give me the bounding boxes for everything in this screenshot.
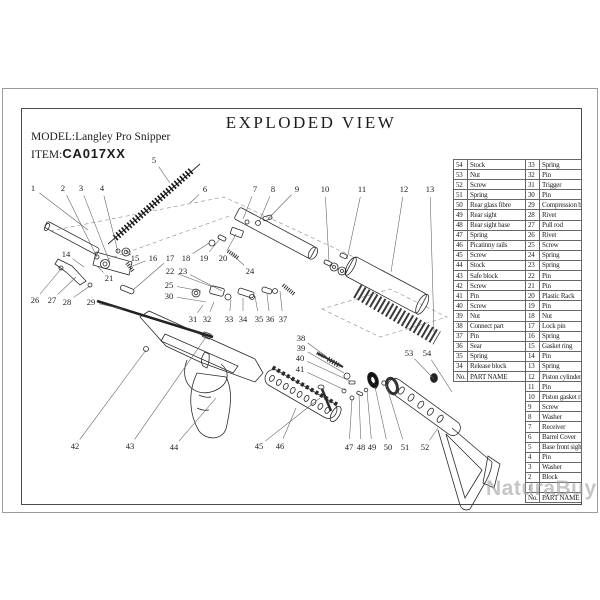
callout-leader-46: [283, 408, 296, 439]
part-name: Pin: [540, 271, 582, 281]
part-row: 6Barrel Cover: [526, 432, 582, 442]
part-no: 40: [454, 301, 468, 311]
part-row: 9Screw: [526, 402, 582, 412]
part-row: 32Pin: [526, 170, 582, 180]
callout-number-32: 32: [203, 314, 212, 324]
callout-number-40: 40: [296, 353, 305, 363]
part-no: 25: [526, 240, 540, 250]
part-no: 32: [526, 170, 540, 180]
callout-number-8: 8: [271, 184, 275, 194]
callout-leader-48: [359, 395, 361, 439]
pins-washers-drawing: [324, 252, 348, 275]
part-name: Sear: [468, 341, 526, 351]
callout-leader-35: [255, 296, 258, 311]
part-row: 31Trigger: [526, 180, 582, 190]
callout-number-9: 9: [295, 184, 299, 194]
callout-number-24: 24: [246, 266, 255, 276]
part-name: Screw: [468, 301, 526, 311]
part-row: 25Screw: [526, 240, 582, 250]
callout-number-47: 47: [345, 442, 354, 452]
callout-leader-37: [280, 291, 282, 311]
part-no: 39: [454, 311, 468, 321]
callout-leader-17: [133, 263, 164, 290]
part-name: Receiver: [540, 422, 582, 432]
part-row: 21Pin: [526, 281, 582, 291]
part-row: 47Spring: [454, 230, 526, 240]
part-name: Nut: [540, 311, 582, 321]
callout-number-48: 48: [357, 442, 366, 452]
part-row: 53Nut: [454, 170, 526, 180]
part-name: Piston cylinder: [540, 371, 582, 381]
callout-leader-49: [367, 391, 371, 439]
callout-number-10: 10: [321, 184, 330, 194]
part-name: Pin: [540, 382, 582, 392]
callout-number-14: 14: [62, 249, 71, 259]
part-no: 33: [526, 160, 540, 170]
callout-leader-30: [177, 297, 206, 302]
callout-number-51: 51: [401, 442, 410, 452]
callout-number-27: 27: [48, 295, 57, 305]
part-no: 37: [454, 331, 468, 341]
part-name: Pin: [540, 281, 582, 291]
callout-number-44: 44: [170, 442, 179, 452]
callout-number-11: 11: [358, 184, 366, 194]
part-name: Pull rod: [540, 220, 582, 230]
part-name: Washer: [540, 462, 582, 472]
part-name: Stock: [468, 160, 526, 170]
part-row: 51Spring: [454, 190, 526, 200]
callout-leader-10: [325, 197, 329, 262]
part-no: 4: [526, 452, 540, 462]
part-name: Rear sight: [468, 210, 526, 220]
part-name: Piston gasket ring: [540, 392, 582, 402]
part-no: 22: [526, 271, 540, 281]
part-no: 18: [526, 311, 540, 321]
callout-leader-33: [230, 300, 231, 311]
part-no: 52: [454, 180, 468, 190]
part-no: 41: [454, 291, 468, 301]
part-name: Pin: [540, 351, 582, 361]
part-row: 4Pin: [526, 452, 582, 462]
part-name: Pin: [540, 190, 582, 200]
parts-table-left: 54Stock53Nut52Screw51Spring50Rear glass …: [453, 159, 526, 382]
callout-leader-14: [72, 259, 84, 267]
callout-leader-3: [84, 195, 110, 263]
callout-leader-52: [430, 428, 438, 440]
callout-number-18: 18: [182, 253, 191, 263]
callout-number-6: 6: [203, 184, 207, 194]
callout-leader-12: [391, 197, 403, 272]
part-no: 47: [454, 230, 468, 240]
callout-leader-27: [58, 277, 76, 294]
part-name: Spring: [468, 190, 526, 200]
part-no: 9: [526, 402, 540, 412]
callout-leader-50: [375, 387, 386, 439]
part-row: 17Lock pin: [526, 321, 582, 331]
part-row: 30Pin: [526, 190, 582, 200]
part-no: 26: [526, 230, 540, 240]
part-row: 36Sear: [454, 341, 526, 351]
part-no: 29: [526, 200, 540, 210]
part-no: 53: [454, 170, 468, 180]
callout-number-7: 7: [253, 184, 257, 194]
callout-leader-5: [159, 167, 170, 183]
callout-number-3: 3: [79, 183, 83, 193]
part-row: 26Rivet: [526, 230, 582, 240]
callout-number-31: 31: [189, 314, 198, 324]
callout-leader-24: [232, 254, 244, 266]
part-name: Rear glass fibre: [468, 200, 526, 210]
callout-leader-13: [430, 197, 434, 332]
part-row: 24Spring: [526, 250, 582, 260]
part-no: No.: [454, 371, 468, 381]
part-no: 27: [526, 220, 540, 230]
barrel-drawing: [43, 221, 213, 337]
callout-leader-31: [198, 305, 204, 313]
part-row: 5Base front sight: [526, 442, 582, 452]
part-name: Plastic Rack: [540, 291, 582, 301]
part-no: 3: [526, 462, 540, 472]
mainspring-drawing: [108, 164, 200, 244]
part-name: Pin: [540, 452, 582, 462]
callout-number-50: 50: [384, 442, 393, 452]
callout-leader-53: [415, 359, 434, 379]
part-name: Gasket ring: [540, 341, 582, 351]
part-name: Spring: [540, 250, 582, 260]
callout-number-28: 28: [63, 297, 72, 307]
part-row: 49Rear sight: [454, 210, 526, 220]
part-no: 28: [526, 210, 540, 220]
part-row: 15Gasket ring: [526, 341, 582, 351]
callout-leader-9: [268, 195, 291, 219]
part-no: 13: [526, 361, 540, 371]
part-name: Pin: [468, 331, 526, 341]
part-name: Rear sight base: [468, 220, 526, 230]
part-no: 12: [526, 371, 540, 381]
part-no: 23: [526, 260, 540, 270]
callout-leader-7: [243, 196, 252, 219]
callout-number-2: 2: [61, 183, 65, 193]
part-no: 54: [454, 160, 468, 170]
part-row: 8Washer: [526, 412, 582, 422]
part-no: 8: [526, 412, 540, 422]
part-name: Spring: [468, 351, 526, 361]
part-row: 3Washer: [526, 462, 582, 472]
callout-number-38: 38: [297, 333, 306, 343]
part-row: 41Pin: [454, 291, 526, 301]
part-name: Picatinny rails: [468, 240, 526, 250]
part-name: Nut: [468, 311, 526, 321]
part-no: 20: [526, 291, 540, 301]
part-name: Lock pin: [540, 321, 582, 331]
parts-table-right: 33Spring32Pin31Trigger30Pin29Compression…: [525, 159, 582, 503]
part-name: PART NAME: [468, 371, 526, 381]
callout-leader-36: [267, 294, 269, 311]
part-row: 45Screw: [454, 250, 526, 260]
part-name: Screw: [468, 250, 526, 260]
callout-number-34: 34: [239, 314, 248, 324]
callout-leader-41: [307, 372, 345, 390]
callout-leader-38: [307, 343, 327, 357]
part-row: 23Spring: [526, 260, 582, 270]
callout-leader-25: [177, 286, 201, 291]
callout-number-35: 35: [255, 314, 264, 324]
callout-leader-44: [179, 398, 216, 441]
naturabuy-watermark: NaturaBuy: [486, 477, 597, 501]
callout-number-53: 53: [405, 348, 414, 358]
part-no: 45: [454, 250, 468, 260]
part-row: 33Spring: [526, 160, 582, 170]
callout-number-1: 1: [31, 183, 35, 193]
part-row: 39Nut: [454, 311, 526, 321]
part-row: 16Spring: [526, 331, 582, 341]
grip-frame-drawing: [140, 311, 331, 438]
trigger-mechanism-drawing: [192, 227, 294, 300]
part-name: Rivet: [540, 230, 582, 240]
part-row: 7Receiver: [526, 422, 582, 432]
part-no: 31: [526, 180, 540, 190]
part-name: Spring: [540, 160, 582, 170]
part-name: Pin: [540, 301, 582, 311]
part-name: Compression bar: [540, 200, 582, 210]
part-row: 20Plastic Rack: [526, 291, 582, 301]
part-row: 48Rear sight base: [454, 220, 526, 230]
part-row: 19Pin: [526, 301, 582, 311]
part-name: Trigger: [540, 180, 582, 190]
part-row: 10Piston gasket ring: [526, 392, 582, 402]
callout-number-16: 16: [149, 253, 158, 263]
callout-number-12: 12: [400, 184, 409, 194]
callout-number-42: 42: [71, 441, 80, 451]
part-no: 35: [454, 351, 468, 361]
part-row: No.PART NAME: [454, 371, 526, 381]
callout-number-25: 25: [165, 280, 174, 290]
callout-number-29: 29: [87, 297, 96, 307]
callout-number-37: 37: [279, 314, 288, 324]
callout-number-39: 39: [297, 343, 306, 353]
callout-number-5: 5: [152, 155, 156, 165]
part-name: Spring: [540, 361, 582, 371]
part-no: 42: [454, 281, 468, 291]
part-name: Spring: [540, 331, 582, 341]
part-name: Screw: [468, 180, 526, 190]
part-name: Barrel Cover: [540, 432, 582, 442]
callout-leader-4: [104, 196, 118, 252]
callout-number-43: 43: [126, 441, 135, 451]
part-no: 43: [454, 271, 468, 281]
part-row: 29Compression bar: [526, 200, 582, 210]
part-row: 46Picatinny rails: [454, 240, 526, 250]
callout-leader-42: [80, 350, 146, 440]
part-name: Safe block: [468, 271, 526, 281]
part-row: 27Pull rod: [526, 220, 582, 230]
part-row: 14Pin: [526, 351, 582, 361]
part-name: Screw: [540, 240, 582, 250]
part-row: 38Connect part: [454, 321, 526, 331]
callout-number-33: 33: [225, 314, 234, 324]
part-no: 44: [454, 260, 468, 270]
part-name: Base front sight: [540, 442, 582, 452]
part-row: 54Stock: [454, 160, 526, 170]
main-coil-spring-drawing: [357, 291, 437, 338]
callout-number-36: 36: [266, 314, 275, 324]
part-row: 42Screw: [454, 281, 526, 291]
part-row: 22Pin: [526, 271, 582, 281]
callout-leader-32: [210, 302, 214, 312]
part-row: 40Screw: [454, 301, 526, 311]
part-no: 36: [454, 341, 468, 351]
part-no: 51: [454, 190, 468, 200]
part-row: 43Safe block: [454, 271, 526, 281]
part-no: 30: [526, 190, 540, 200]
callout-number-54: 54: [423, 348, 432, 358]
part-no: 16: [526, 331, 540, 341]
part-name: Rivet: [540, 210, 582, 220]
part-name: Washer: [540, 412, 582, 422]
part-no: 48: [454, 220, 468, 230]
callout-leader-2: [67, 195, 97, 257]
part-name: Screw: [540, 402, 582, 412]
part-no: 7: [526, 422, 540, 432]
part-name: Pin: [468, 291, 526, 301]
part-row: 11Pin: [526, 382, 582, 392]
part-no: 15: [526, 341, 540, 351]
part-row: 52Screw: [454, 180, 526, 190]
part-name: Release block: [468, 361, 526, 371]
part-name: Spring: [540, 260, 582, 270]
callout-number-20: 20: [219, 253, 228, 263]
callout-number-17: 17: [166, 253, 175, 263]
part-row: 37Pin: [454, 331, 526, 341]
part-row: 44Stock: [454, 260, 526, 270]
part-no: 11: [526, 382, 540, 392]
part-name: Pin: [540, 170, 582, 180]
callout-number-19: 19: [200, 253, 209, 263]
part-no: 49: [454, 210, 468, 220]
callout-number-41: 41: [296, 364, 305, 374]
callout-leader-6: [190, 194, 199, 203]
callout-number-13: 13: [426, 184, 435, 194]
part-no: 50: [454, 200, 468, 210]
callout-number-21: 21: [105, 273, 114, 283]
part-no: 6: [526, 432, 540, 442]
callout-leader-26: [40, 269, 61, 294]
callout-number-49: 49: [368, 442, 377, 452]
part-no: 38: [454, 321, 468, 331]
part-row: 35Spring: [454, 351, 526, 361]
callout-number-52: 52: [421, 442, 430, 452]
part-no: 5: [526, 442, 540, 452]
part-row: 28Rivet: [526, 210, 582, 220]
callout-number-26: 26: [31, 295, 40, 305]
callout-number-45: 45: [255, 441, 264, 451]
receiver-drawing: [234, 207, 320, 261]
part-no: 19: [526, 301, 540, 311]
part-no: 24: [526, 250, 540, 260]
part-row: 12Piston cylinder: [526, 371, 582, 381]
part-row: 18Nut: [526, 311, 582, 321]
callout-leader-20: [227, 234, 236, 251]
callout-leader-23: [190, 275, 222, 291]
part-name: Stock: [468, 260, 526, 270]
callout-number-22: 22: [166, 266, 175, 276]
part-no: 14: [526, 351, 540, 361]
callout-number-23: 23: [179, 266, 188, 276]
part-no: 17: [526, 321, 540, 331]
part-name: Spring: [468, 230, 526, 240]
part-name: Nut: [468, 170, 526, 180]
part-no: 21: [526, 281, 540, 291]
part-no: 46: [454, 240, 468, 250]
callout-number-15: 15: [131, 253, 140, 263]
callout-leader-47: [349, 399, 352, 439]
callout-number-30: 30: [165, 291, 174, 301]
callout-leader-45: [265, 398, 320, 441]
part-no: 34: [454, 361, 468, 371]
callout-leader-11: [347, 197, 360, 259]
callout-number-4: 4: [100, 183, 105, 193]
part-row: 50Rear glass fibre: [454, 200, 526, 210]
callout-leader-28: [74, 286, 90, 297]
part-row: 34Release block: [454, 361, 526, 371]
callout-leader-8: [259, 196, 270, 222]
part-name: Screw: [468, 281, 526, 291]
part-row: 13Spring: [526, 361, 582, 371]
callout-number-46: 46: [276, 441, 285, 451]
part-no: 10: [526, 392, 540, 402]
part-name: Connect part: [468, 321, 526, 331]
